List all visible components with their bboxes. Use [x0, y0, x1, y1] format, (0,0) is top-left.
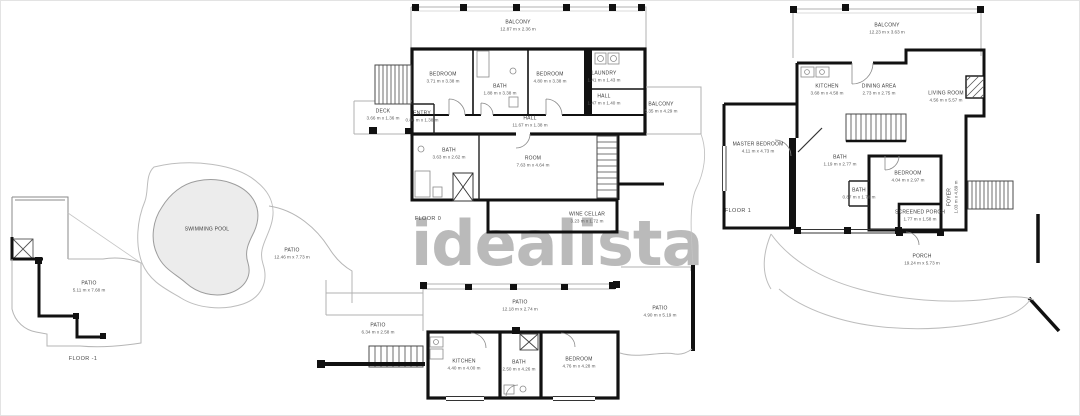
hatch-box-icon	[966, 76, 984, 98]
room-label-floor0-bath-left: BATH3.63 m x 2.62 m	[433, 148, 466, 161]
swimming-pool-shape	[138, 163, 273, 308]
room-label-floor0-entry: ENTRY0.84 m x 1.38 m	[406, 111, 439, 124]
room-label-floor0-balcony-right: BALCONY5.35 m x 4.29 m	[645, 102, 678, 115]
floor1-walls	[721, 4, 1059, 331]
room-label-f1-kitchen: KITCHEN3.68 m x 4.58 m	[811, 84, 844, 97]
room-label-fm1-bath: BATH2.50 m x 4.26 m	[503, 360, 536, 373]
room-name: BATH	[493, 84, 507, 91]
room-label-f1-screened-porch: SCREENED PORCH1.77 m x 1.58 m	[895, 210, 945, 223]
floor0-walls	[354, 4, 705, 264]
room-dims: 19.24 m x 5.73 m	[904, 260, 940, 266]
room-dims: 4.80 m x 3.38 m	[534, 78, 567, 84]
floor-label-0: FLOOR 0	[415, 216, 441, 222]
room-label-fm1-patio-stairs: PATIO6.34 m x 2.58 m	[362, 323, 395, 336]
stairs-icon-shaft	[597, 136, 617, 198]
room-dims: 12.87 m x 2.36 m	[500, 26, 536, 32]
room-name: PATIO	[512, 300, 527, 307]
room-name: BEDROOM	[894, 171, 921, 178]
room-dims: 1.03 m x 4.89 m	[953, 181, 959, 214]
floorplan-image: idealista	[0, 0, 1080, 416]
room-name: BATH	[833, 155, 847, 162]
room-name: MASTER BEDROOM	[733, 142, 784, 149]
room-name: WINE CELLAR	[569, 212, 605, 219]
stairs-icon-exterior	[968, 181, 1013, 209]
room-name: PATIO	[652, 306, 667, 313]
room-name: BALCONY	[505, 20, 530, 27]
room-label-floor0-hall: HALL11.67 m x 1.38 m	[512, 116, 547, 129]
room-name: KITCHEN	[815, 84, 838, 91]
room-label-floor0-bedroom-right: BEDROOM4.80 m x 3.38 m	[534, 72, 567, 85]
room-name: KITCHEN	[452, 359, 475, 366]
room-dims: 4.90 m x 5.19 m	[644, 312, 677, 318]
floor-label-minus1: FLOOR -1	[69, 356, 98, 362]
room-dims: 12.23 m x 3.63 m	[869, 29, 905, 35]
room-name: PATIO	[370, 323, 385, 330]
room-name: BATH	[852, 188, 866, 195]
room-name: BATH	[512, 360, 526, 367]
room-dims: 4.40 m x 4.00 m	[448, 365, 481, 371]
room-label-f1-foyer: FOYER1.03 m x 4.89 m	[947, 181, 960, 214]
room-name: BALCONY	[874, 23, 899, 30]
room-name: SCREENED PORCH	[895, 210, 945, 217]
room-label-fm1-patio-top: PATIO12.18 m x 2.74 m	[502, 300, 538, 313]
room-name: PATIO	[81, 281, 96, 288]
room-label-f1-bath-main: BATH1.19 m x 2.77 m	[824, 155, 857, 168]
room-dims: 1.47 m x 1.40 m	[588, 100, 621, 106]
room-dims: 6.34 m x 2.58 m	[362, 329, 395, 335]
terrain-lines	[764, 234, 1034, 329]
room-dims: 4.04 m x 2.97 m	[892, 177, 925, 183]
room-name: SWIMMING POOL	[185, 227, 230, 234]
room-dims: 1.19 m x 2.77 m	[824, 161, 857, 167]
room-name: BATH	[442, 148, 456, 155]
room-dims: 4.76 m x 4.28 m	[563, 363, 596, 369]
room-label-floor0-wine-cellar: WINE CELLAR3.23 m x 1.72 m	[569, 212, 605, 225]
room-label-floor0-balcony-top: BALCONY12.87 m x 2.36 m	[500, 20, 536, 33]
room-dims: 2.50 m x 4.26 m	[503, 366, 536, 372]
room-dims: 11.67 m x 1.38 m	[512, 122, 547, 128]
crossed-box-icon	[13, 239, 33, 259]
room-name: ENTRY	[413, 111, 431, 118]
room-name: HALL	[597, 94, 610, 101]
room-label-floor0-laundry: LAUNDRY1.41 m x 1.43 m	[588, 71, 621, 84]
room-name: FOYER	[947, 188, 954, 206]
room-dims: 0.87 m x 1.78 m	[843, 194, 876, 200]
room-name: DINING AREA	[862, 84, 896, 91]
room-label-f1-dining-area: DINING AREA2.73 m x 2.75 m	[862, 84, 896, 97]
room-name: LIVING ROOM	[928, 91, 964, 98]
room-dims: 3.71 m x 3.38 m	[427, 78, 460, 84]
room-label-fm1-patio-right: PATIO4.90 m x 5.19 m	[644, 306, 677, 319]
room-name: BEDROOM	[565, 357, 592, 364]
fixture-icons	[801, 67, 829, 77]
room-dims: 12.18 m x 2.74 m	[502, 306, 538, 312]
room-dims: 1.41 m x 1.43 m	[588, 77, 621, 83]
room-label-fm1-bedroom: BEDROOM4.76 m x 4.28 m	[563, 357, 596, 370]
room-name: PORCH	[912, 254, 931, 261]
room-dims: 5.35 m x 4.29 m	[645, 108, 678, 114]
room-name: BEDROOM	[429, 72, 456, 79]
crossed-box-icon	[453, 173, 473, 201]
room-label-floor0-bath-center: BATH1.88 m x 3.38 m	[484, 84, 517, 97]
room-label-f1-porch: PORCH19.24 m x 5.73 m	[904, 254, 940, 267]
room-dims: 1.77 m x 1.58 m	[904, 216, 937, 222]
room-dims: 12.46 m x 7.73 m	[274, 254, 310, 260]
room-dims: 1.88 m x 3.38 m	[484, 90, 517, 96]
crossed-box-icon	[520, 334, 538, 350]
room-name: BEDROOM	[536, 72, 563, 79]
room-label-fm1-kitchen: KITCHEN4.40 m x 4.00 m	[448, 359, 481, 372]
room-label-f1-bath-small: BATH0.87 m x 1.78 m	[843, 188, 876, 201]
room-dims: 3.23 m x 1.72 m	[571, 218, 604, 224]
room-label-floor0-hall-small: HALL1.47 m x 1.40 m	[588, 94, 621, 107]
room-label-f1-balcony: BALCONY12.23 m x 3.63 m	[869, 23, 905, 36]
room-label-fm1-swimming-pool: SWIMMING POOL	[185, 227, 230, 234]
room-name: DECK	[376, 109, 391, 116]
room-dims: 3.66 m x 1.36 m	[367, 115, 400, 121]
room-label-f1-master-bedroom: MASTER BEDROOM4.11 m x 4.73 m	[733, 142, 784, 155]
room-dims: 3.68 m x 4.58 m	[811, 90, 844, 96]
room-dims: 3.63 m x 2.62 m	[433, 154, 466, 160]
stairs-icon-deck	[375, 65, 411, 104]
room-label-floor0-deck: DECK3.66 m x 1.36 m	[367, 109, 400, 122]
room-name: PATIO	[284, 248, 299, 255]
room-dims: 7.63 m x 4.64 m	[517, 162, 550, 168]
room-label-f1-living-room: LIVING ROOM4.56 m x 5.57 m	[928, 91, 964, 104]
room-dims: 4.11 m x 4.73 m	[742, 148, 775, 154]
floorplan-drawing	[1, 1, 1080, 416]
room-label-fm1-patio-left: PATIO5.11 m x 7.68 m	[73, 281, 106, 294]
room-dims: 4.56 m x 5.57 m	[930, 97, 963, 103]
room-dims: 0.84 m x 1.38 m	[406, 117, 439, 123]
room-dims: 5.11 m x 7.68 m	[73, 287, 106, 293]
room-name: ROOM	[525, 156, 541, 163]
room-name: HALL	[523, 116, 536, 123]
room-label-floor0-bedroom-left: BEDROOM3.71 m x 3.38 m	[427, 72, 460, 85]
stairs-icon-interior	[846, 114, 906, 141]
floor-label-1: FLOOR 1	[725, 208, 751, 214]
room-name: BALCONY	[648, 102, 673, 109]
room-label-fm1-patio-pool: PATIO12.46 m x 7.73 m	[274, 248, 310, 261]
room-label-floor0-room: ROOM7.63 m x 4.64 m	[517, 156, 550, 169]
room-dims: 2.73 m x 2.75 m	[863, 90, 896, 96]
room-name: LAUNDRY	[591, 71, 616, 78]
room-label-f1-bedroom: BEDROOM4.04 m x 2.97 m	[892, 171, 925, 184]
